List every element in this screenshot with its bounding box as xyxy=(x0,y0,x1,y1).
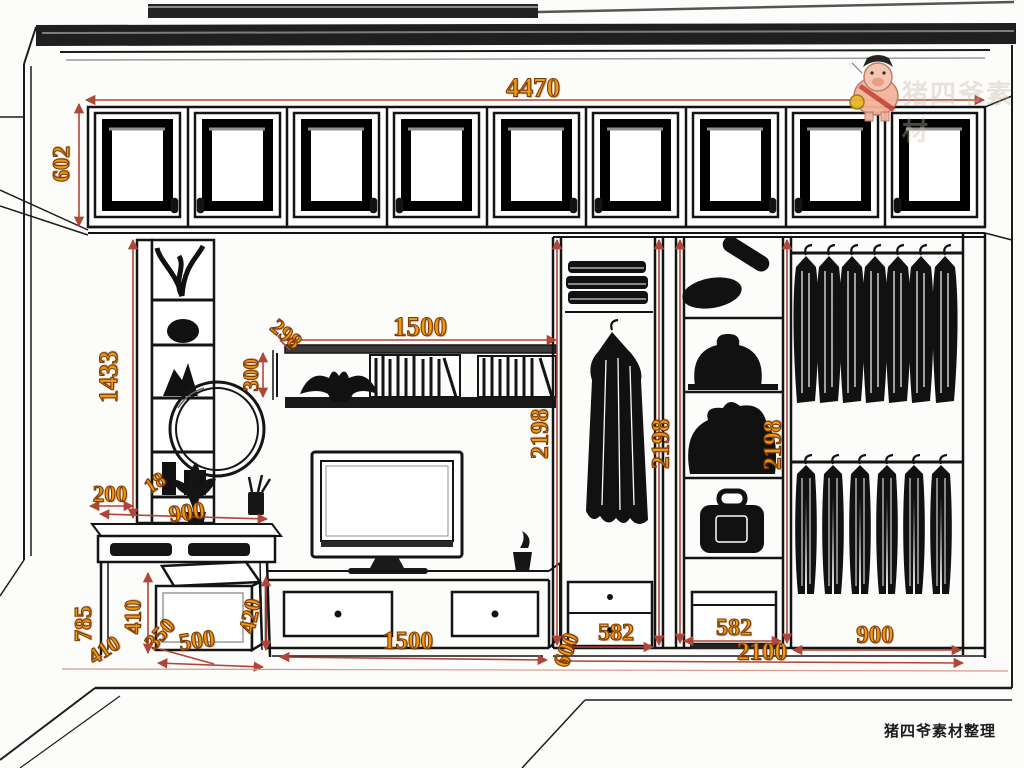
dim-section-mid-width: 582 xyxy=(716,616,752,640)
dim-hang-height-left: 2198 xyxy=(528,409,553,459)
dim-total-width: 4470 xyxy=(506,75,560,102)
faint-watermark-text: 猪四爷素材 xyxy=(902,74,1024,148)
dim-upper-cabinet-height: 602 xyxy=(50,146,74,182)
dim-dresser-depth: 200 xyxy=(93,483,128,506)
hanging-jackets xyxy=(793,245,957,403)
dim-shelf-width: 1500 xyxy=(393,314,447,341)
dim-dresser-height: 785 xyxy=(72,606,96,642)
dim-stool-height: 410 xyxy=(122,600,145,635)
dim-stool-width: 500 xyxy=(178,627,217,656)
dim-hanging-section-width: 900 xyxy=(856,623,894,648)
upper-cabinets xyxy=(88,107,985,233)
brush-cup xyxy=(248,475,270,515)
wall-shelf xyxy=(273,345,556,408)
line-drawing-canvas xyxy=(0,0,1024,768)
furniture-dimension-drawing: 4470 602 1433 298 300 1500 2198 2198 219… xyxy=(0,0,1024,768)
dim-wardrobe-total-width: 2100 xyxy=(737,640,787,665)
dim-hang-height-mid: 2198 xyxy=(649,419,674,469)
dim-hang-height-right: 2198 xyxy=(761,420,786,470)
dim-dresser-width: 900 xyxy=(168,499,207,528)
dim-shelf-height: 300 xyxy=(240,359,262,392)
hanging-pants xyxy=(795,455,952,594)
wardrobe-left-section xyxy=(566,261,652,646)
dim-tv-cabinet-width: 1500 xyxy=(383,629,433,654)
credit-text: 猪四爷素材整理 xyxy=(884,720,996,741)
dim-bookcase-height: 1433 xyxy=(96,351,122,403)
television xyxy=(312,452,462,574)
dim-section-left-width: 582 xyxy=(598,621,634,645)
